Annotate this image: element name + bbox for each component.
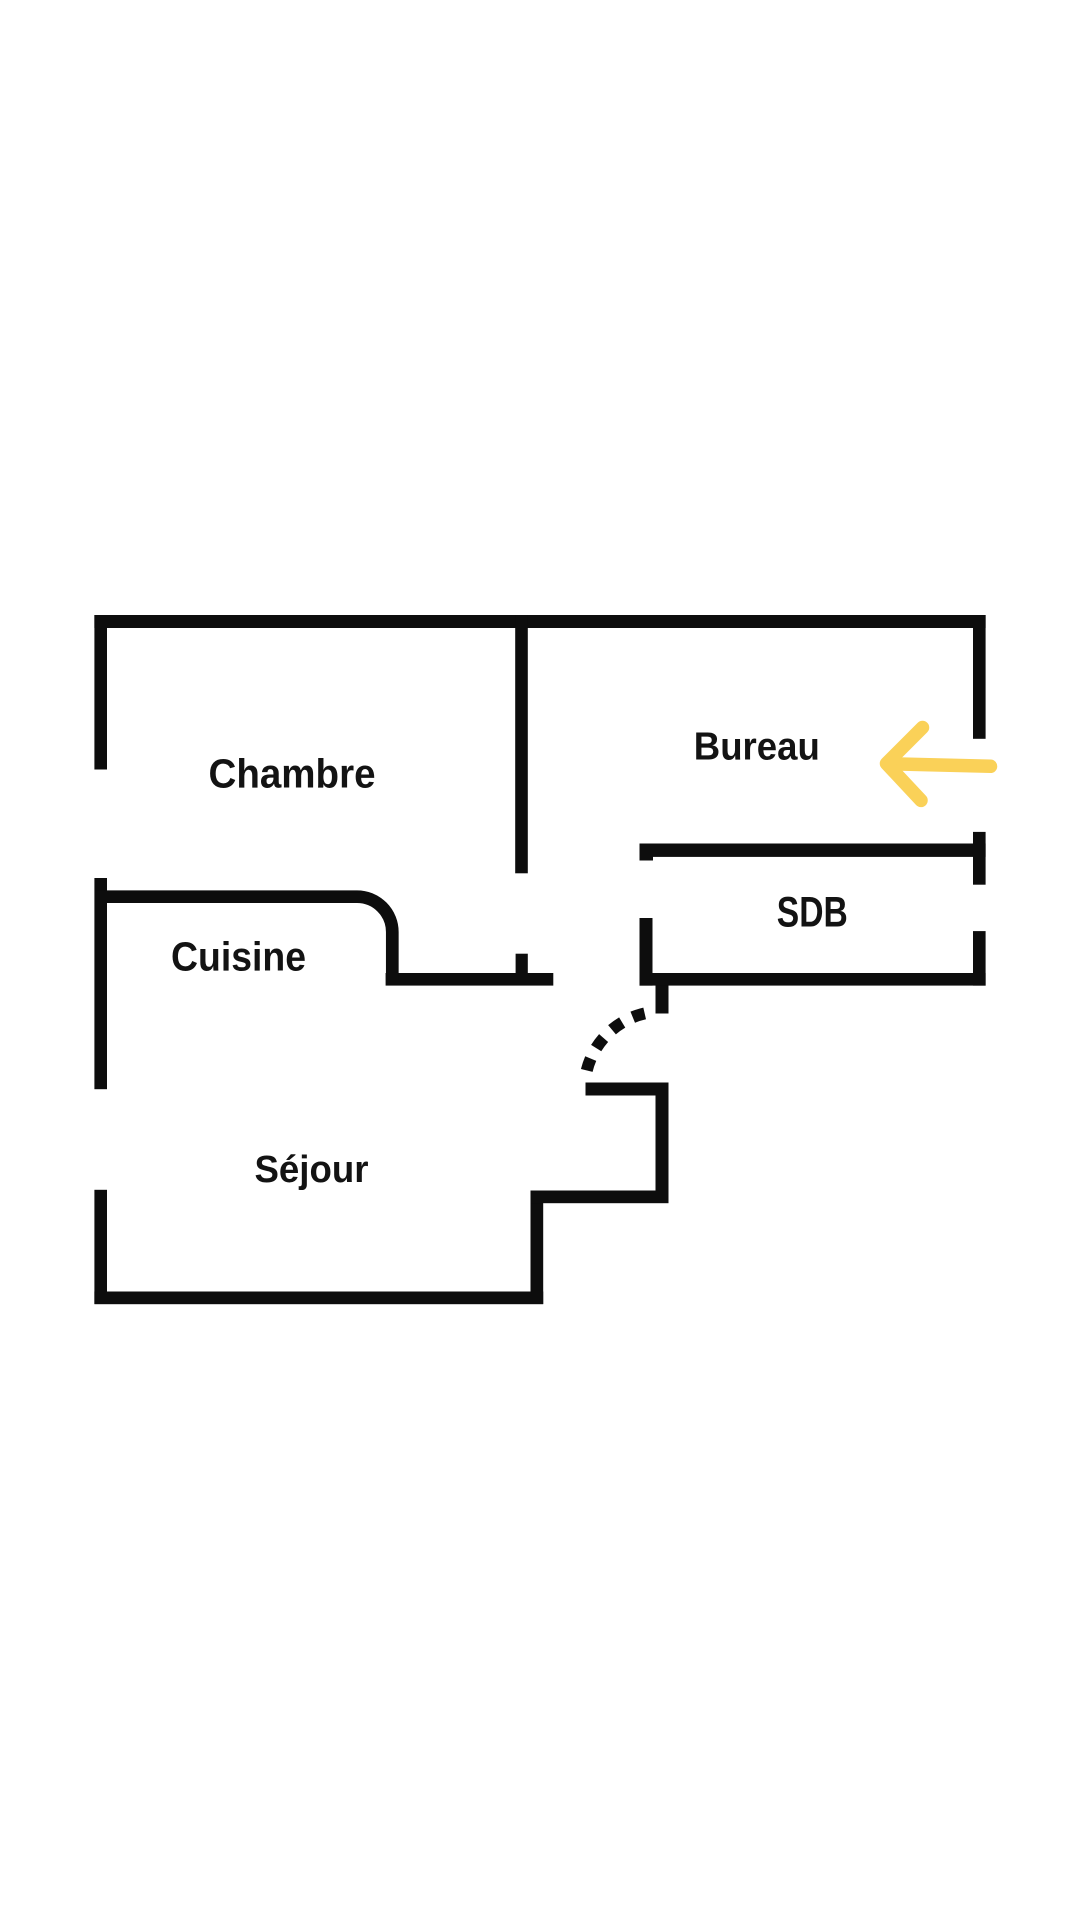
svg-text:Bureau: Bureau: [694, 725, 820, 768]
svg-text:Cuisine: Cuisine: [171, 933, 306, 979]
svg-text:Séjour: Séjour: [255, 1149, 369, 1191]
svg-text:SDB: SDB: [777, 888, 848, 936]
svg-text:Chambre: Chambre: [209, 751, 376, 797]
